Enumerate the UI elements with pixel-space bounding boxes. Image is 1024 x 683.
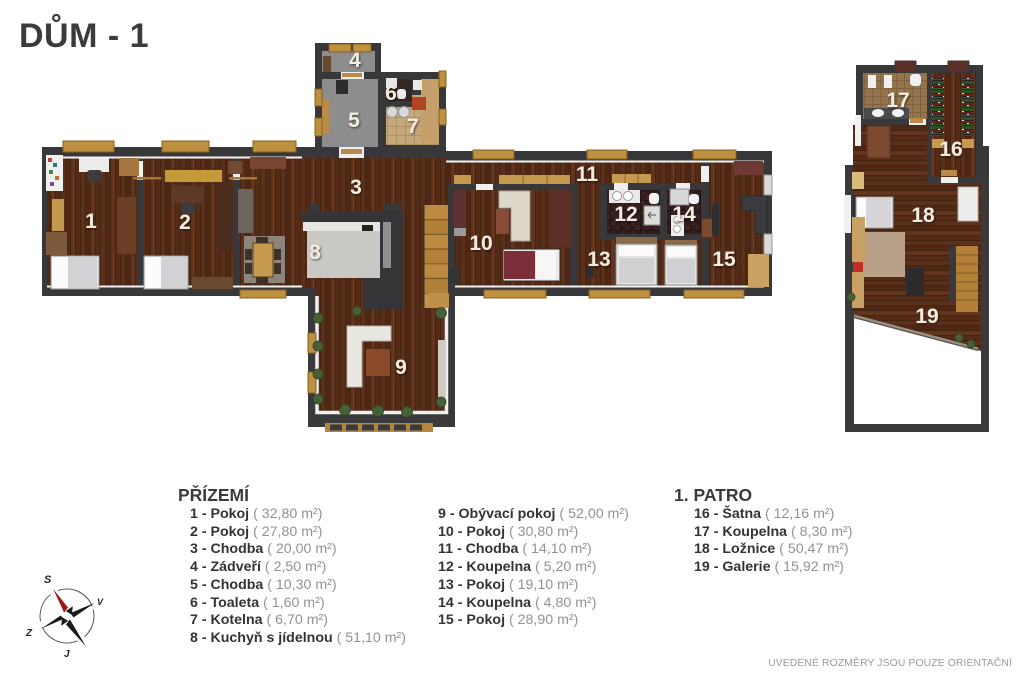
svg-text:14: 14 <box>672 203 696 226</box>
svg-text:16: 16 <box>939 138 962 161</box>
svg-text:9: 9 <box>395 356 407 379</box>
svg-text:18: 18 <box>911 204 935 227</box>
svg-text:2: 2 <box>179 211 191 234</box>
svg-text:17: 17 <box>886 89 909 112</box>
svg-text:11: 11 <box>576 163 599 186</box>
svg-text:19: 19 <box>915 305 938 328</box>
svg-text:12: 12 <box>614 203 637 226</box>
svg-text:4: 4 <box>349 49 361 72</box>
svg-text:13: 13 <box>587 248 610 271</box>
svg-text:V: V <box>97 597 104 607</box>
svg-text:J: J <box>64 649 70 660</box>
svg-text:8: 8 <box>309 241 321 264</box>
svg-text:S: S <box>44 574 52 586</box>
svg-text:10: 10 <box>469 232 492 255</box>
svg-text:7: 7 <box>407 115 419 138</box>
svg-text:6: 6 <box>385 82 397 105</box>
svg-text:5: 5 <box>348 109 360 132</box>
svg-text:1: 1 <box>85 210 97 233</box>
svg-text:3: 3 <box>350 176 362 199</box>
svg-text:Z: Z <box>25 628 33 639</box>
svg-text:15: 15 <box>712 248 736 271</box>
